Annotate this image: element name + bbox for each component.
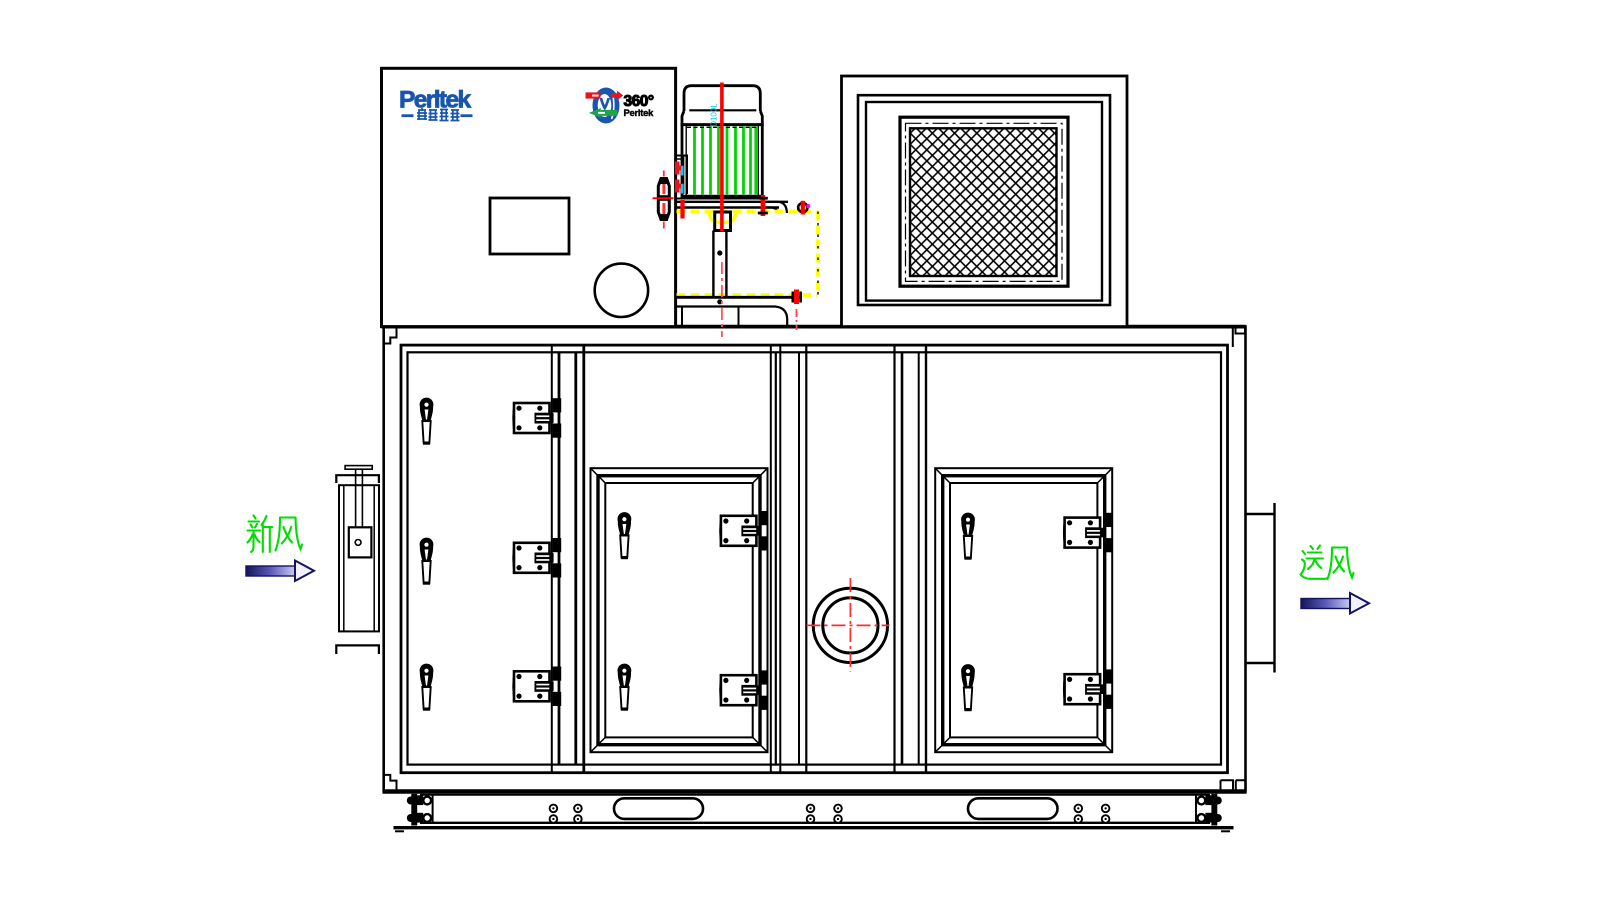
svg-text:Perltek: Perltek bbox=[624, 108, 655, 119]
svg-text:D100L: D100L bbox=[710, 103, 719, 127]
